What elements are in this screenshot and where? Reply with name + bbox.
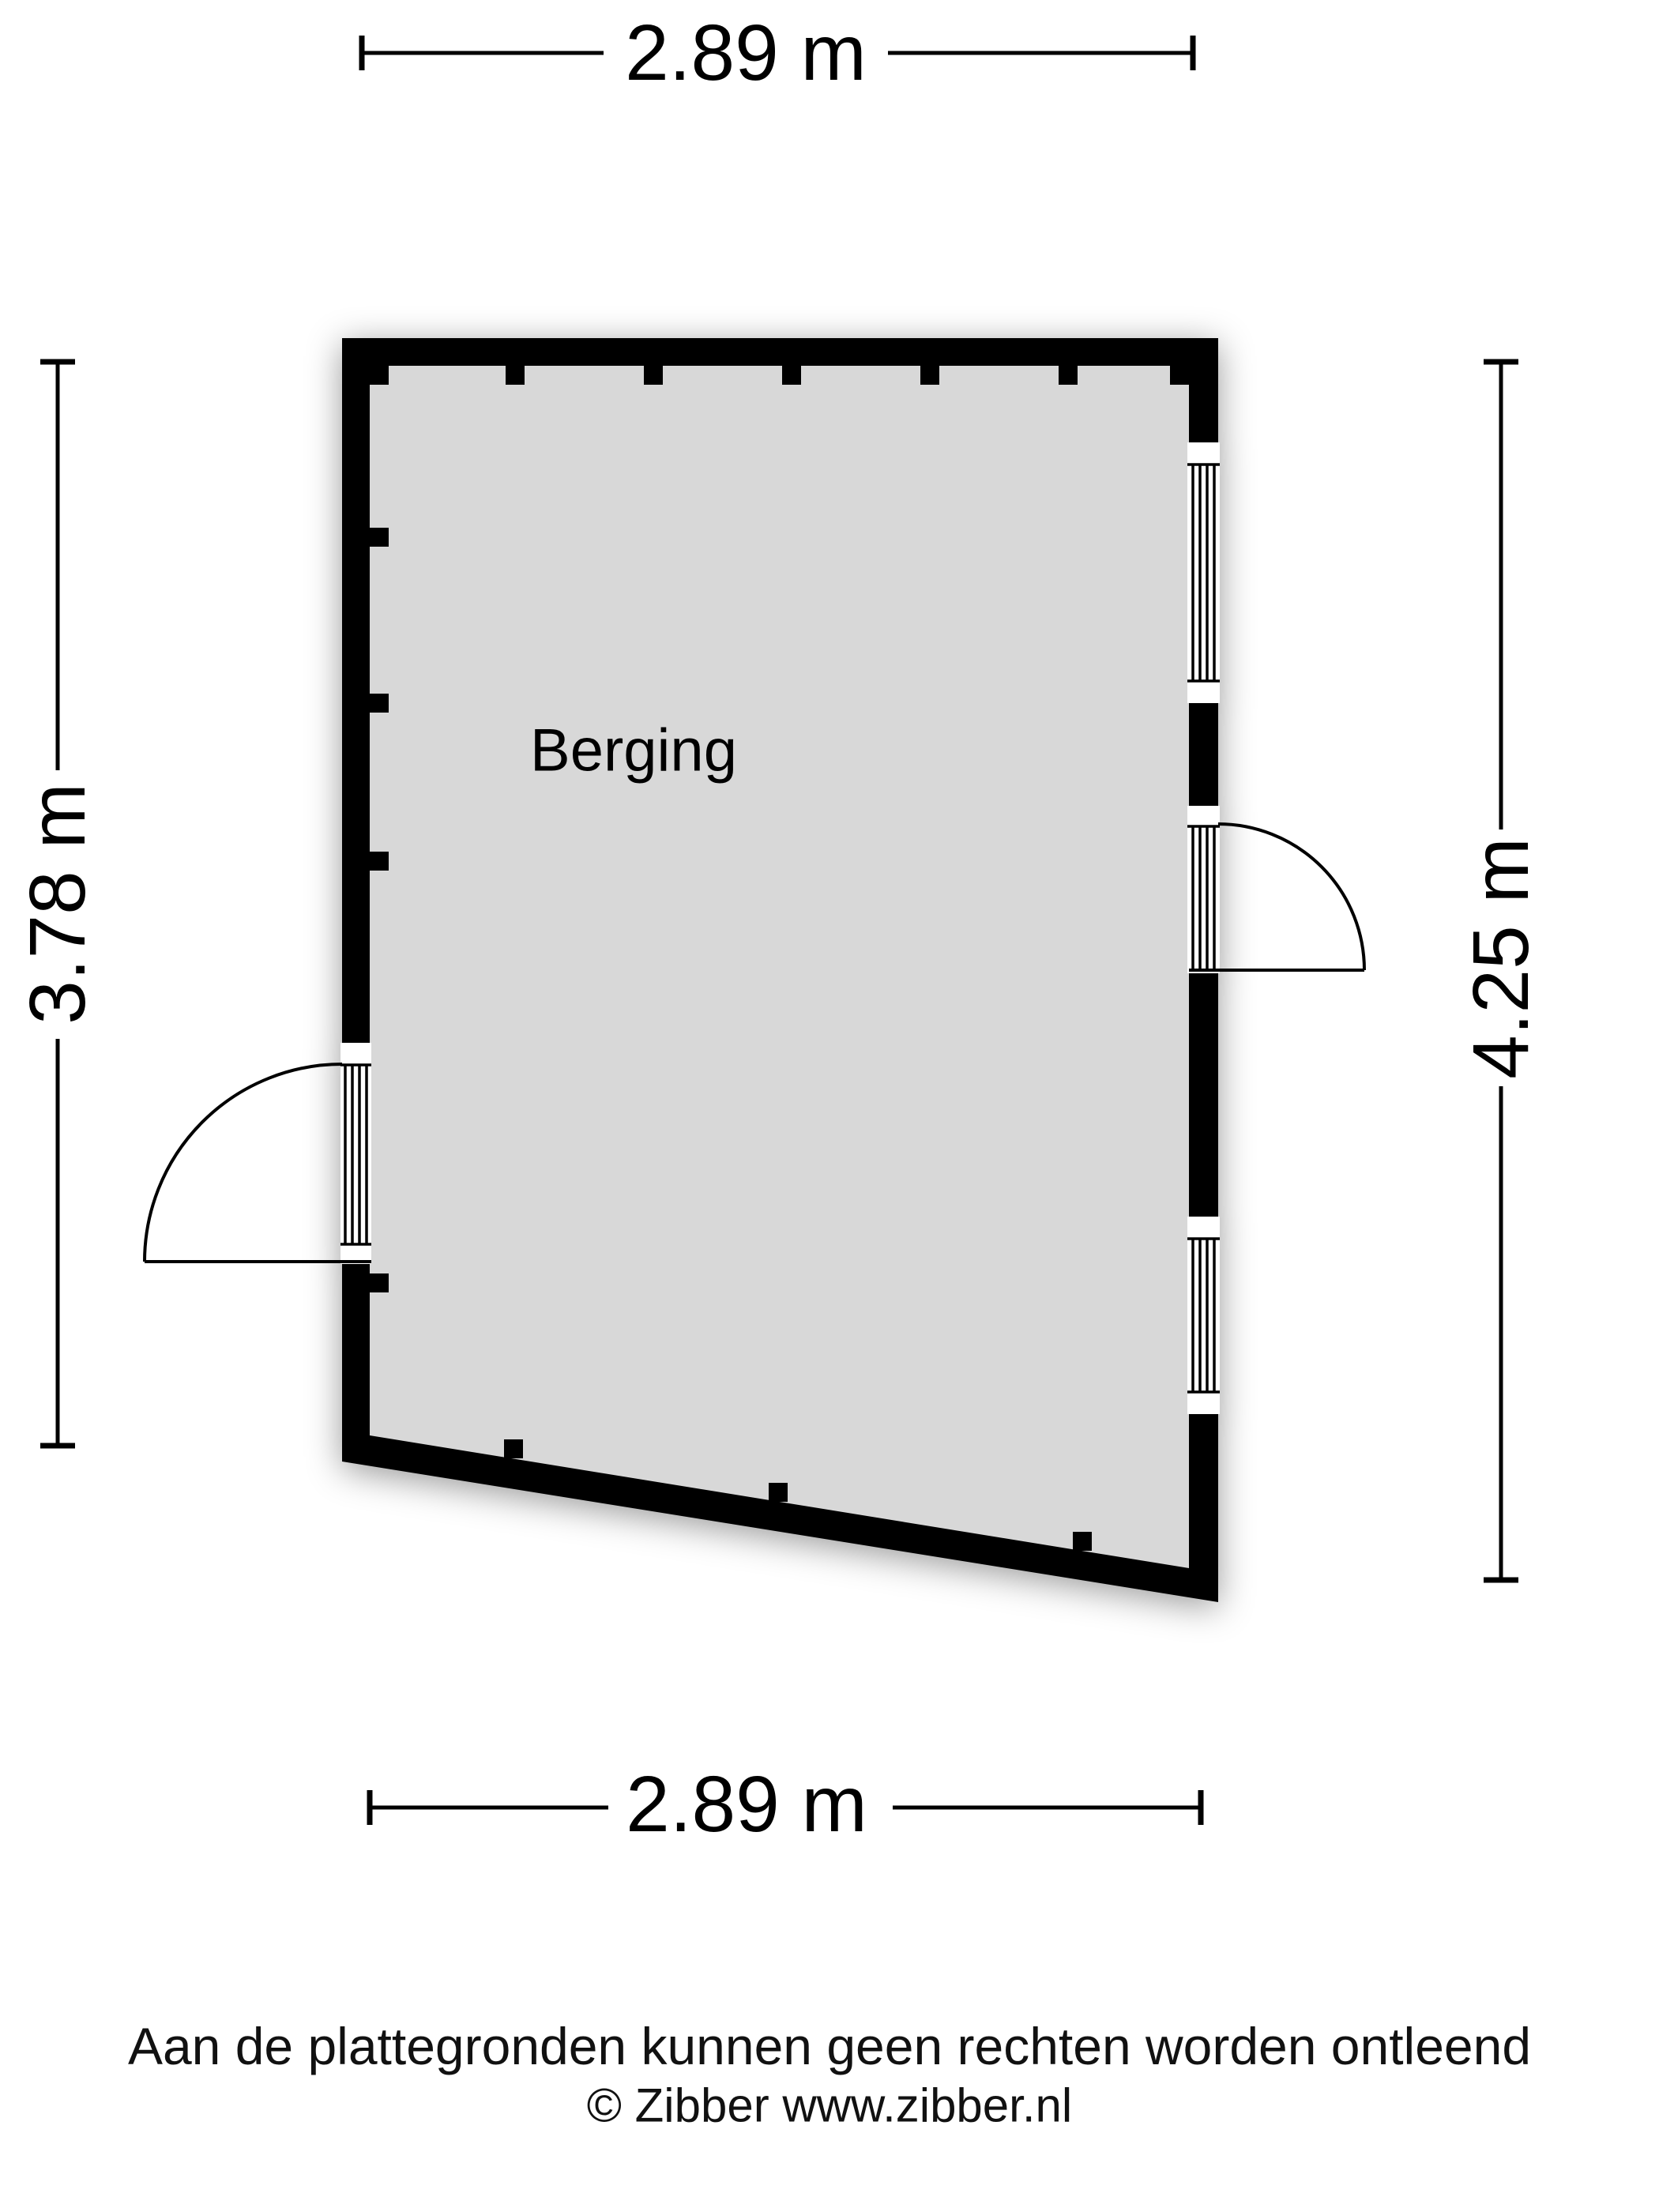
dim-top-label: 2.89 m: [625, 9, 867, 97]
wall-tooth: [504, 1439, 523, 1458]
dim-top: 2.89 m: [362, 9, 1193, 97]
dim-left: 3.78 m: [13, 362, 102, 1446]
room-berging: [340, 338, 1220, 1602]
dim-right: 4.25 m: [1457, 362, 1545, 1580]
wall-tooth: [769, 1483, 788, 1502]
room-label: Berging: [530, 717, 737, 784]
dim-bottom: 2.89 m: [370, 1760, 1201, 1849]
wall-tooth: [782, 366, 801, 385]
door-right-swing-arc: [1218, 824, 1364, 970]
room-floor: [370, 366, 1189, 1568]
wall-tooth: [370, 366, 389, 385]
door-left: [340, 1043, 371, 1264]
floorplan-canvas: 2.89 m 2.89 m 3.78 m 4.25 m Berging Aan …: [0, 0, 1659, 2212]
wall-tooth: [370, 528, 389, 547]
wall-tooth: [644, 366, 663, 385]
wall-tooth: [1170, 366, 1189, 385]
wall-tooth: [506, 366, 525, 385]
footer-disclaimer: Aan de plattegronden kunnen geen rechten…: [128, 2017, 1531, 2075]
dim-left-label: 3.78 m: [13, 783, 102, 1025]
footer-copyright: © Zibber www.zibber.nl: [587, 2079, 1072, 2132]
wall-tooth: [370, 1273, 389, 1292]
window-right-upper: [1187, 442, 1220, 703]
wall-tooth: [370, 694, 389, 713]
door-right: [1187, 806, 1220, 973]
dim-right-label: 4.25 m: [1457, 837, 1545, 1079]
wall-tooth: [920, 366, 939, 385]
wall-tooth: [1059, 366, 1078, 385]
wall-tooth: [370, 852, 389, 871]
window-right-lower: [1187, 1217, 1220, 1414]
door-left-swing-arc: [145, 1064, 342, 1262]
dim-bottom-label: 2.89 m: [626, 1760, 867, 1849]
floorplan-page: 2.89 m 2.89 m 3.78 m 4.25 m Berging Aan …: [0, 0, 1659, 2212]
wall-tooth: [1073, 1532, 1092, 1551]
